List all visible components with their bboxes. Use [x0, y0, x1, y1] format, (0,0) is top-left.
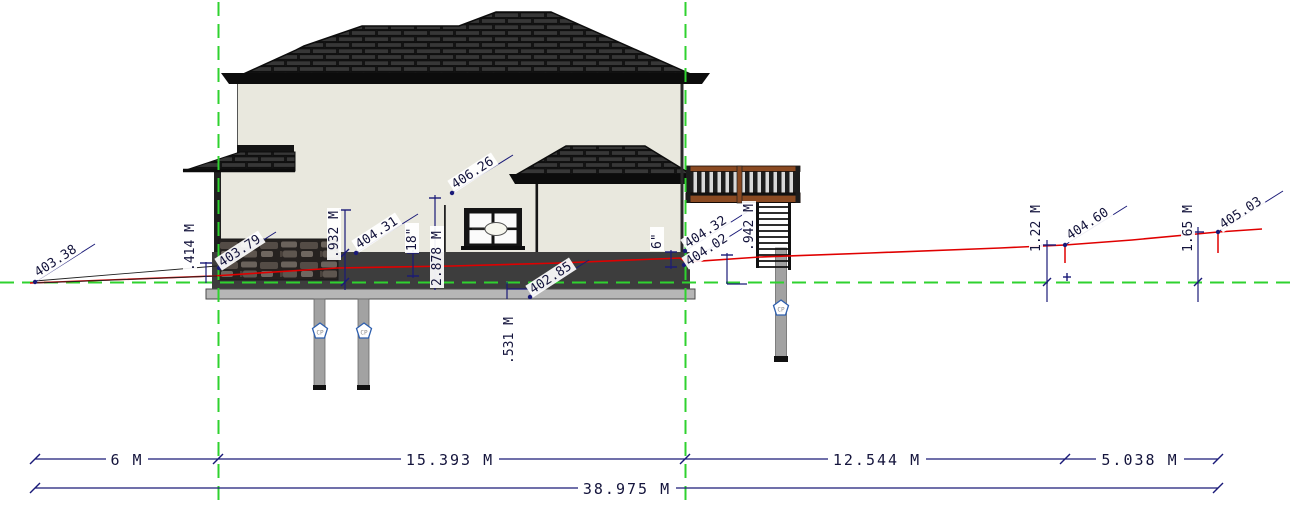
railing-balusters [686, 172, 800, 194]
spot-405-03: 405.03 [1217, 194, 1265, 232]
right-wall-trim [681, 84, 684, 255]
pier-badge-3: CP [777, 307, 785, 314]
dim-overall: 38.975 M [583, 480, 671, 498]
main-roof-fascia [221, 73, 710, 84]
dim-segment-1: 6 M [110, 451, 143, 469]
vdim-932: .932 M [327, 211, 342, 258]
window-tag-oval [485, 223, 507, 236]
footing-slab [206, 289, 695, 299]
dim-segment-4: 5.038 M [1101, 451, 1178, 469]
wing-roof-fascia [509, 174, 699, 184]
vdim-18in: 18" [405, 228, 420, 251]
house-structure [183, 12, 800, 390]
elevation-drawing: 6 M 15.393 M 12.544 M 5.038 M 38.975 M .… [0, 0, 1295, 508]
vdim-122: 1.22 M [1029, 205, 1044, 252]
wing-corner-trim [536, 184, 539, 255]
vdim-2878: 2.878 M [430, 231, 445, 286]
window-sill [461, 246, 525, 250]
vdim-942: .942 M [742, 204, 757, 251]
dim-segment-2: 15.393 M [406, 451, 494, 469]
pier-badge-2: CP [360, 330, 368, 337]
pier-badges: CP CP CP [313, 300, 789, 338]
vdim-6in: 6" [650, 233, 665, 249]
pier-badge-1: CP [316, 330, 324, 337]
main-roof [228, 12, 704, 81]
deck [686, 166, 800, 362]
dim-segment-3: 12.544 M [833, 451, 921, 469]
vdim-531: .531 M [502, 317, 517, 364]
left-ledge-roof [183, 152, 295, 171]
vdim-165: 1.65 M [1181, 205, 1196, 252]
spot-404-60: 404.60 [1064, 205, 1112, 243]
elevation-drawing-canvas: 6 M 15.393 M 12.544 M 5.038 M 38.975 M .… [0, 0, 1295, 508]
vdim-414: .414 M [183, 224, 198, 271]
pier-right [357, 299, 370, 390]
railing-top-rail [686, 166, 800, 172]
horizontal-dimensions: 6 M 15.393 M 12.544 M 5.038 M 38.975 M [30, 451, 1223, 498]
window [461, 208, 525, 250]
spot-403-38: 403.38 [32, 242, 80, 280]
pier-left [313, 299, 326, 390]
